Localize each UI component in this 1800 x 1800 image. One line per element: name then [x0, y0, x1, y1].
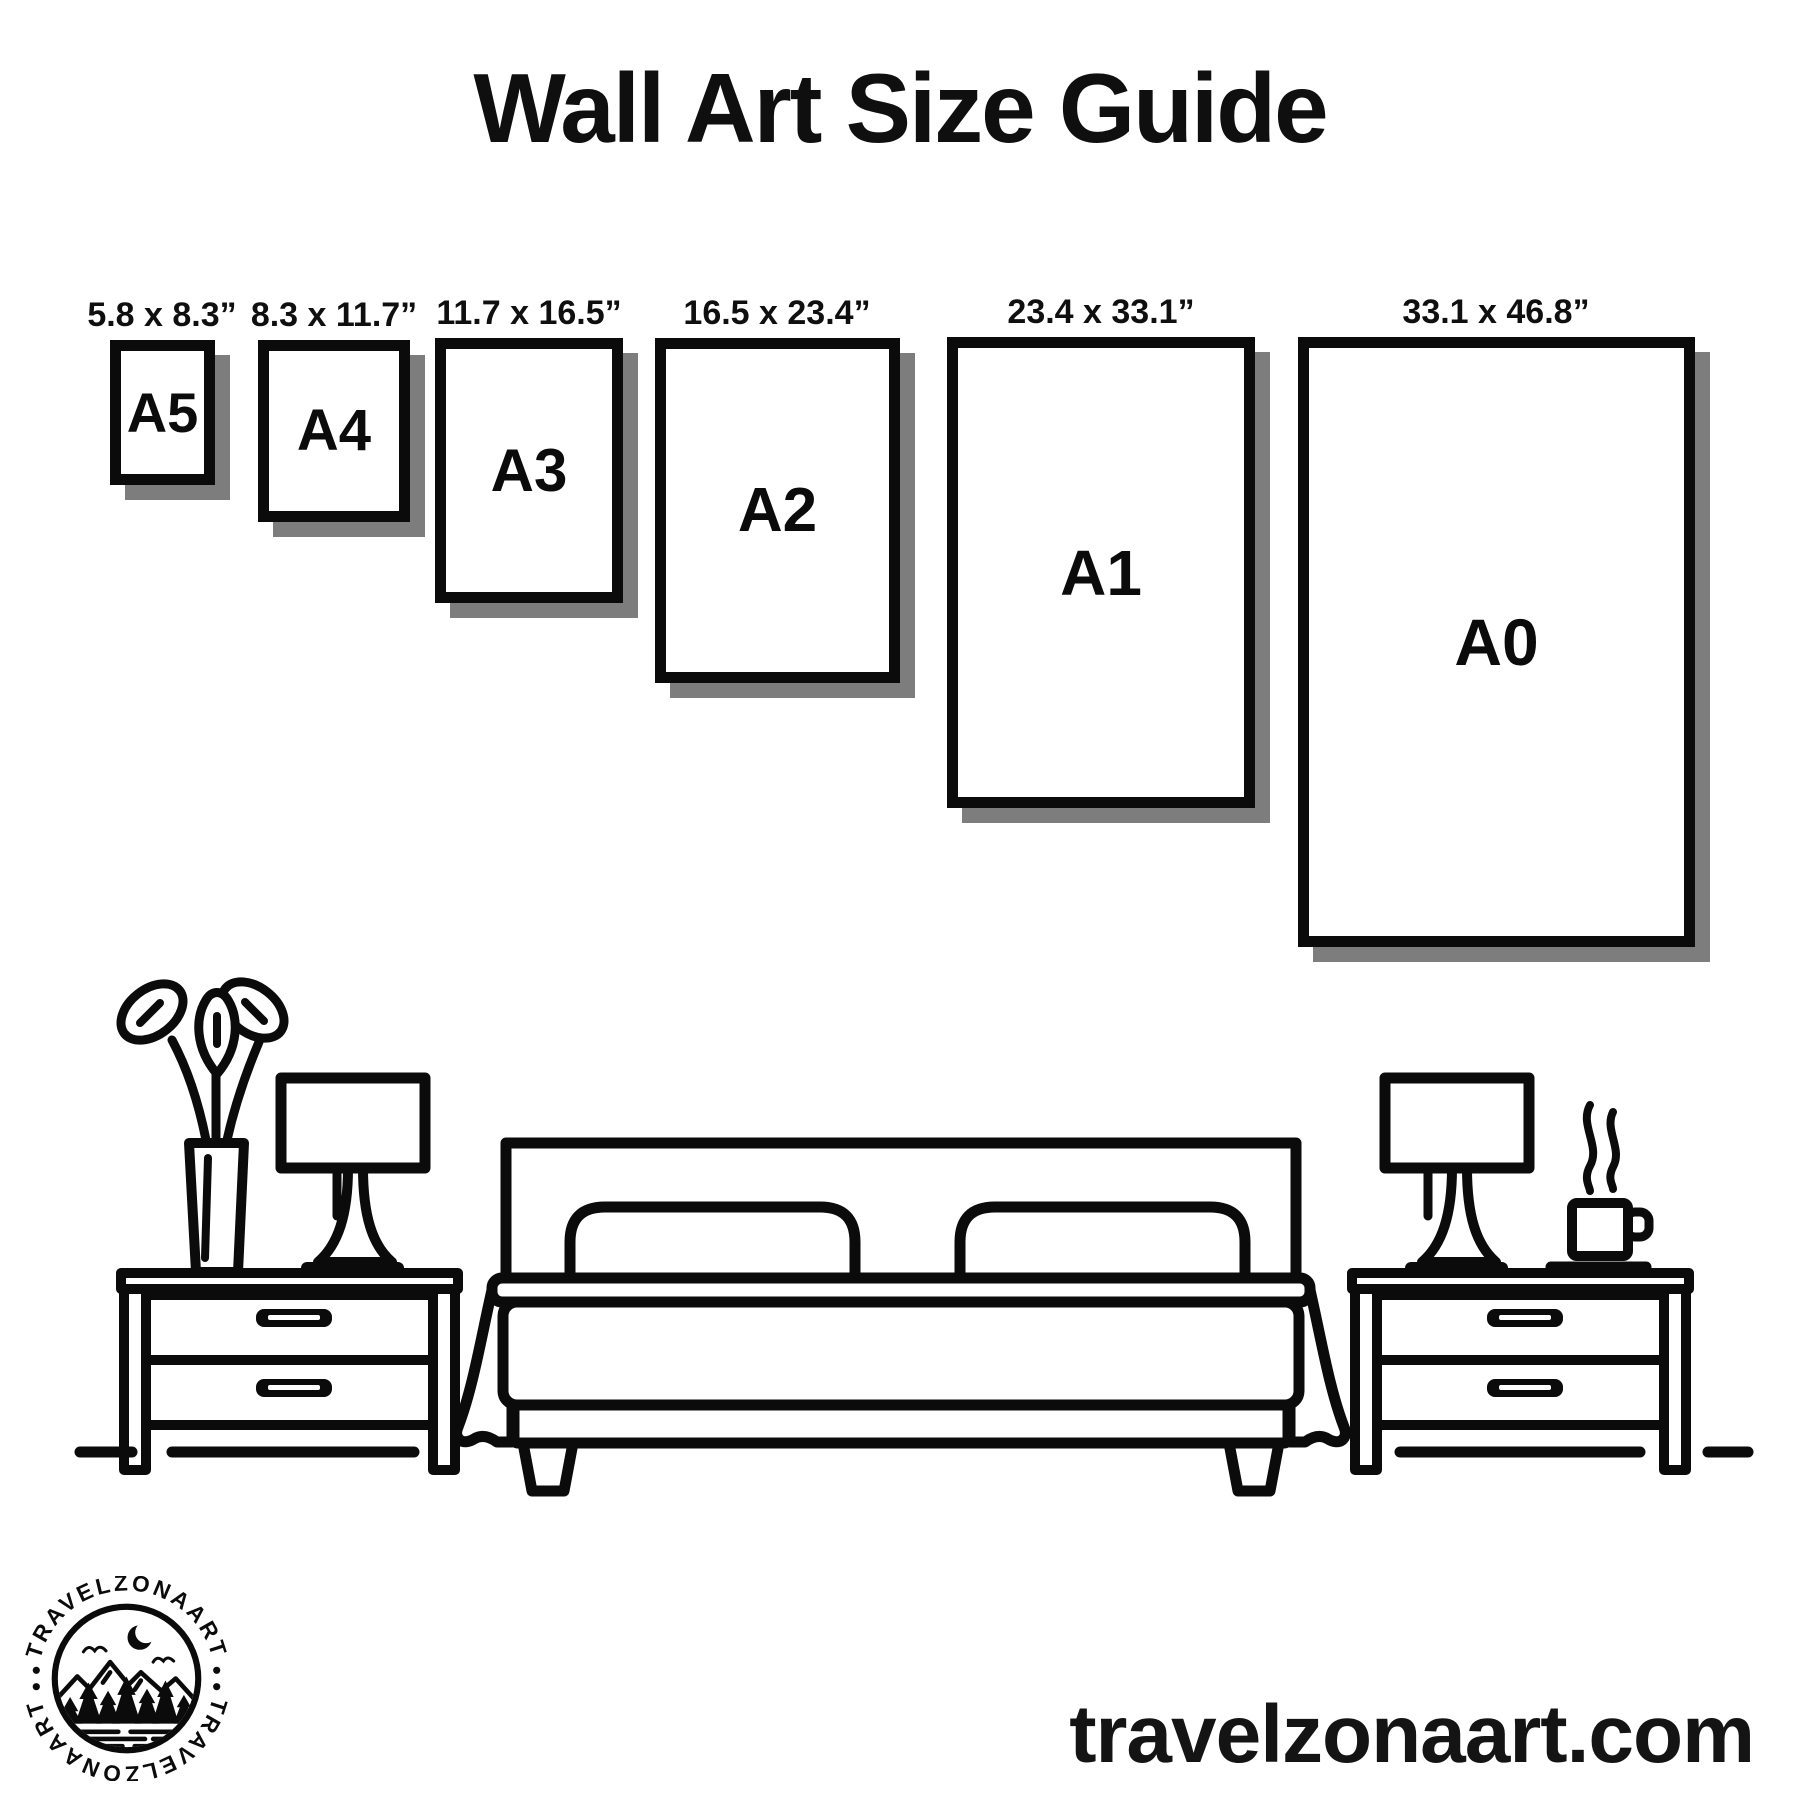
bed-foot-left: [523, 1443, 573, 1491]
logo-badge: TRAVELZONAART TRAVELZONAART: [24, 1576, 229, 1781]
sheet-a4: A4: [258, 340, 410, 522]
sheet-a5: A5: [110, 340, 215, 485]
bed-foot-right: [1229, 1443, 1279, 1491]
sheet-a3: A3: [435, 338, 623, 603]
bed-icon: [457, 1143, 1346, 1491]
sheet-name-a0: A0: [1454, 609, 1538, 675]
sheet-name-a1: A1: [1060, 541, 1142, 605]
wall-art-size-guide: Wall Art Size Guide 5.8 x 8.3” A5 8.3 x …: [0, 0, 1800, 1800]
bedroom-scene: [0, 940, 1800, 1510]
nightstand-right-icon: [1352, 1273, 1689, 1470]
size-dim-label-a1: 23.4 x 33.1”: [941, 293, 1261, 332]
coffee-cup-icon: [1551, 1105, 1649, 1267]
size-dim-label-a2: 16.5 x 23.4”: [617, 294, 937, 333]
nightstand-left-icon: [121, 1273, 458, 1470]
bed-base: [514, 1405, 1288, 1443]
lamp-left-icon: [281, 1078, 425, 1268]
sheet-name-a2: A2: [738, 480, 817, 542]
sheet-name-a4: A4: [297, 402, 371, 460]
website-text: travelzonaart.com: [1069, 1688, 1754, 1782]
blanket-front: [503, 1302, 1299, 1405]
sheet-a2: A2: [655, 338, 900, 683]
pillow-left-icon: [570, 1207, 855, 1283]
sheet-name-a3: A3: [491, 441, 568, 501]
sheet-name-a5: A5: [127, 385, 199, 441]
plant-icon: [110, 970, 294, 1272]
page-title: Wall Art Size Guide: [0, 52, 1800, 165]
sheet-a0: A0: [1298, 337, 1695, 947]
sheet-a1: A1: [947, 337, 1255, 808]
size-dim-label-a0: 33.1 x 46.8”: [1336, 293, 1656, 332]
lamp-right-icon: [1385, 1078, 1529, 1268]
pillow-right-icon: [960, 1207, 1245, 1283]
